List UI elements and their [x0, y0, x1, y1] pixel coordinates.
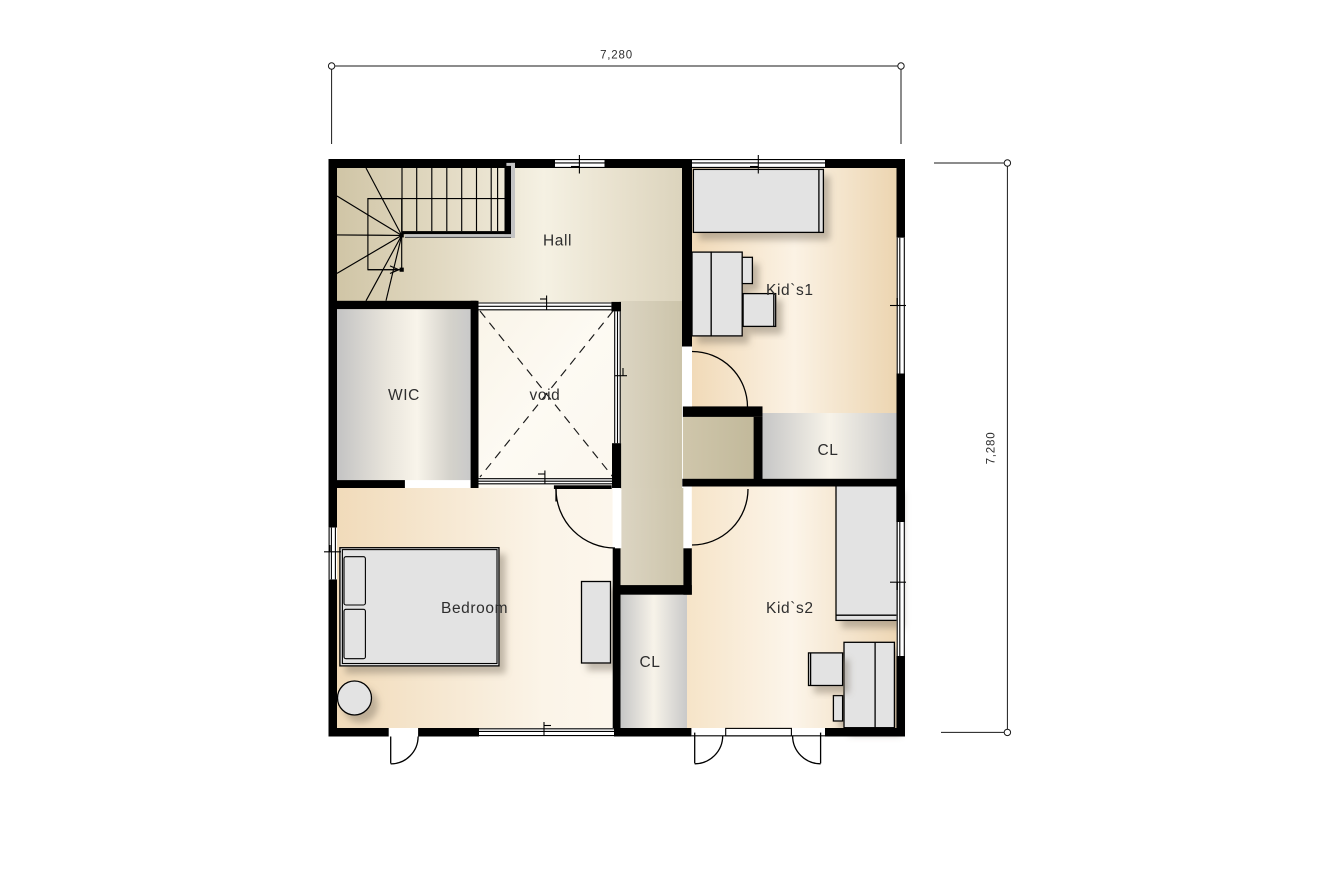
svg-text:7,280: 7,280 [600, 50, 633, 62]
svg-text:Kid`s2: Kid`s2 [766, 600, 814, 617]
svg-text:Hall: Hall [543, 233, 572, 250]
svg-text:7,280: 7,280 [986, 432, 998, 465]
svg-text:CL: CL [640, 654, 661, 671]
svg-text:CL: CL [818, 442, 839, 459]
svg-text:void: void [530, 387, 561, 404]
svg-text:Bedroom: Bedroom [441, 600, 508, 617]
svg-text:WIC: WIC [388, 387, 420, 404]
svg-text:Kid`s1: Kid`s1 [766, 282, 814, 299]
